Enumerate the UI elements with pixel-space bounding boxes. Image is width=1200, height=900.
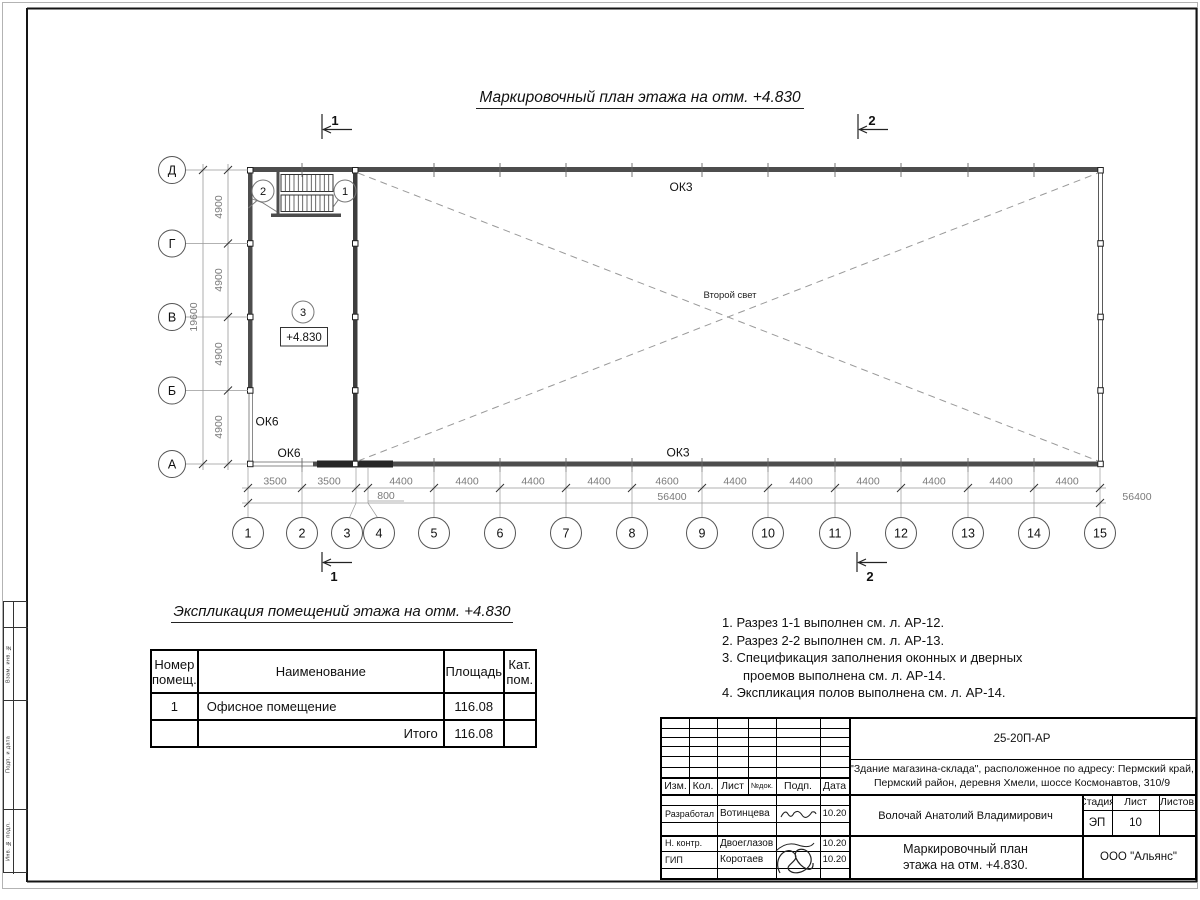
table-row: 1 Офисное помещение 116.08 <box>151 693 536 720</box>
margin-box-podp-data: Подп. и дата <box>4 700 13 809</box>
dim-label: 4400 <box>723 476 747 488</box>
note-line: 4. Экспликация полов выполнена см. л. АР… <box>722 684 1022 702</box>
signature-ncontr-gip <box>772 833 818 878</box>
tb-object-line2: Пермский район, деревня Хмели, шоссе Кос… <box>874 777 1170 791</box>
tb-role-gip: ГИП <box>662 851 720 868</box>
total-label-cell: Итого <box>198 720 444 747</box>
tb-object-description: "Здание магазина-склада", расположенное … <box>849 759 1195 794</box>
dim-label: 4400 <box>587 476 611 488</box>
svg-text:Б: Б <box>168 384 176 398</box>
svg-text:13: 13 <box>961 527 975 541</box>
axis-bubble-labels-left: Д Г В Б А <box>168 164 177 472</box>
dim-label: 4400 <box>789 476 813 488</box>
dim-label: 4400 <box>389 476 413 488</box>
tb-role-developed: Разработал <box>662 805 720 822</box>
dim-label: 4400 <box>856 476 880 488</box>
empty-cell <box>151 720 198 747</box>
tb-col-list: Лист <box>717 777 748 794</box>
col-header-area: Площадь <box>444 650 504 693</box>
note-line: проемов выполнена см. л. АР-14. <box>743 667 1022 685</box>
tb-stage-value: ЭП <box>1082 810 1112 835</box>
tb-date-ncontr: 10.20 <box>820 835 849 851</box>
bottom-wall <box>313 462 1102 467</box>
svg-text:4: 4 <box>376 527 383 541</box>
ok3-bottom-label: ОК3 <box>667 446 690 460</box>
tb-company-name: ООО "Альянс" <box>1082 835 1195 878</box>
svg-text:А: А <box>168 458 177 472</box>
tb-drawing-title-line2: этажа на отм. +4.830. <box>903 857 1028 873</box>
svg-text:4900: 4900 <box>213 195 225 219</box>
dim-label: 4400 <box>1055 476 1079 488</box>
svg-text:7: 7 <box>563 527 570 541</box>
table-total-row: Итого 116.08 <box>151 720 536 747</box>
tb-doc-code: 25-20П-АР <box>849 719 1195 759</box>
dim-label: 4400 <box>922 476 946 488</box>
room-marker-1-label: 1 <box>342 186 348 198</box>
svg-text:11: 11 <box>829 527 842 541</box>
explication-table: Номерпомещ. Наименование Площадь Кат.пом… <box>150 649 537 748</box>
svg-text:6: 6 <box>497 527 504 541</box>
svg-text:9: 9 <box>699 527 706 541</box>
signature-developed <box>778 807 818 821</box>
stair-treads-lower <box>285 196 328 212</box>
note-line: 2. Разрез 2-2 выполнен см. л. АР-13. <box>722 632 1022 650</box>
dim-label-800: 800 <box>377 490 395 502</box>
tb-col-ndok: №док. <box>748 777 776 794</box>
svg-text:15: 15 <box>1093 527 1107 541</box>
tb-drawing-title-line1: Маркировочный план <box>903 841 1028 857</box>
room-marker-3-label: 3 <box>300 307 306 319</box>
second-light-label: Второй свет <box>703 290 757 301</box>
svg-text:4900: 4900 <box>213 268 225 292</box>
col-header-category: Кат.пом. <box>504 650 536 693</box>
explication-header-row: Номерпомещ. Наименование Площадь Кат.пом… <box>151 650 536 693</box>
top-wall <box>248 167 1102 172</box>
col-header-room-number: Номерпомещ. <box>151 650 198 693</box>
tb-chief-name: Волочай Анатолий Владимирович <box>849 796 1082 835</box>
svg-text:В: В <box>168 311 176 325</box>
note-line: 3. Спецификация заполнения оконных и две… <box>722 649 1022 667</box>
stair-landing <box>271 214 341 218</box>
tb-name-developed: Вотинцева <box>717 805 779 822</box>
dim-label: 4400 <box>989 476 1013 488</box>
col-header-name: Наименование <box>198 650 444 693</box>
tb-date-developed: 10.20 <box>820 805 849 822</box>
svg-text:Г: Г <box>169 237 176 251</box>
bottom-window-ok6 <box>248 462 313 466</box>
room-area-cell: 116.08 <box>444 693 504 720</box>
tb-col-podp: Подп. <box>776 777 820 794</box>
svg-text:1: 1 <box>245 527 252 541</box>
svg-text:Д: Д <box>168 164 177 178</box>
svg-text:10: 10 <box>761 527 775 541</box>
dim-label: 3500 <box>317 476 341 488</box>
total-area-cell: 116.08 <box>444 720 504 747</box>
dim-label: 4400 <box>521 476 545 488</box>
tb-sheet-number: 10 <box>1112 810 1159 835</box>
svg-text:8: 8 <box>629 527 636 541</box>
tb-name-ncontr: Двоеглазов <box>717 835 779 851</box>
svg-text:4900: 4900 <box>213 415 225 439</box>
ok3-top-label: ОК3 <box>670 180 693 194</box>
tb-drawing-title: Маркировочный план этажа на отм. +4.830. <box>849 835 1082 878</box>
svg-text:12: 12 <box>894 527 908 541</box>
walls <box>248 167 1103 468</box>
dim-label: 4400 <box>455 476 479 488</box>
drawing-sheet: { "title": "Маркировочный план этажа на … <box>0 0 1200 900</box>
note-line: 1. Разрез 1-1 выполнен см. л. АР-12. <box>722 614 1022 632</box>
empty-cell <box>504 720 536 747</box>
left-window-ok6 <box>249 392 253 462</box>
section-2-top-label: 2 <box>868 113 875 128</box>
room-markers <box>249 180 357 323</box>
dim-total-label: 56400 <box>1122 491 1151 503</box>
column-markers <box>248 168 1104 467</box>
dim-label: 4600 <box>655 476 679 488</box>
axis-bubbles-bottom <box>233 518 1116 549</box>
plan-title: Маркировочный план этажа на отм. +4.830 <box>420 89 860 107</box>
dim-label: 3500 <box>263 476 287 488</box>
svg-text:3: 3 <box>344 527 351 541</box>
tb-date-gip: 10.20 <box>820 851 849 868</box>
svg-text:4900: 4900 <box>213 342 225 366</box>
explication-title: Экспликация помещений этажа на отм. +4.8… <box>150 603 534 620</box>
room-number-cell: 1 <box>151 693 198 720</box>
svg-text:14: 14 <box>1027 527 1041 541</box>
left-wall <box>248 170 253 392</box>
tb-stage-label: Стадия <box>1082 794 1112 810</box>
section-1-top-label: 1 <box>331 113 338 128</box>
section-1-bottom-label: 1 <box>330 569 337 584</box>
notes-list: 1. Разрез 1-1 выполнен см. л. АР-12. 2. … <box>722 614 1022 702</box>
room-name-cell: Офисное помещение <box>198 693 444 720</box>
title-block: Изм. Кол. Лист №док. Подп. Дата Разработ… <box>660 717 1197 880</box>
tb-sheet-label: Лист <box>1112 794 1159 810</box>
bottom-dim-labels: 3500 3500 4400 4400 4400 4400 4600 4400 … <box>263 476 1151 504</box>
elevation-label: +4.830 <box>286 332 322 344</box>
margin-box-inv-podl: Инв. № подл. <box>4 809 13 873</box>
room-category-cell <box>504 693 536 720</box>
margin-box-vzam-inv: Взам. инв. № <box>4 627 13 700</box>
tb-name-gip: Коротаев <box>717 851 779 868</box>
tb-object-line1: "Здание магазина-склада", расположенное … <box>850 763 1194 777</box>
svg-text:5: 5 <box>431 527 438 541</box>
section-2-bottom-label: 2 <box>866 569 873 584</box>
tb-sheets-label: Листов <box>1159 794 1195 810</box>
dim-total-label: 56400 <box>657 491 686 503</box>
void-diagonals <box>358 173 1098 461</box>
tb-col-data: Дата <box>820 777 849 794</box>
tb-col-kol: Кол. <box>689 777 717 794</box>
tb-role-ncontr: Н. контр. <box>662 835 720 851</box>
ok6-left-label: ОК6 <box>256 415 279 429</box>
svg-text:2: 2 <box>299 527 306 541</box>
margin-stamp-column: Взам. инв. № Подп. и дата Инв. № подл. <box>3 601 27 873</box>
tb-col-izm: Изм. <box>662 777 689 794</box>
room-marker-2-label: 2 <box>260 186 266 198</box>
stair-treads-upper <box>285 175 328 192</box>
dim-total-left-label: 19600 <box>188 302 200 331</box>
stairwell-wall <box>277 172 280 214</box>
ok6-bottom-label: ОК6 <box>278 446 301 460</box>
